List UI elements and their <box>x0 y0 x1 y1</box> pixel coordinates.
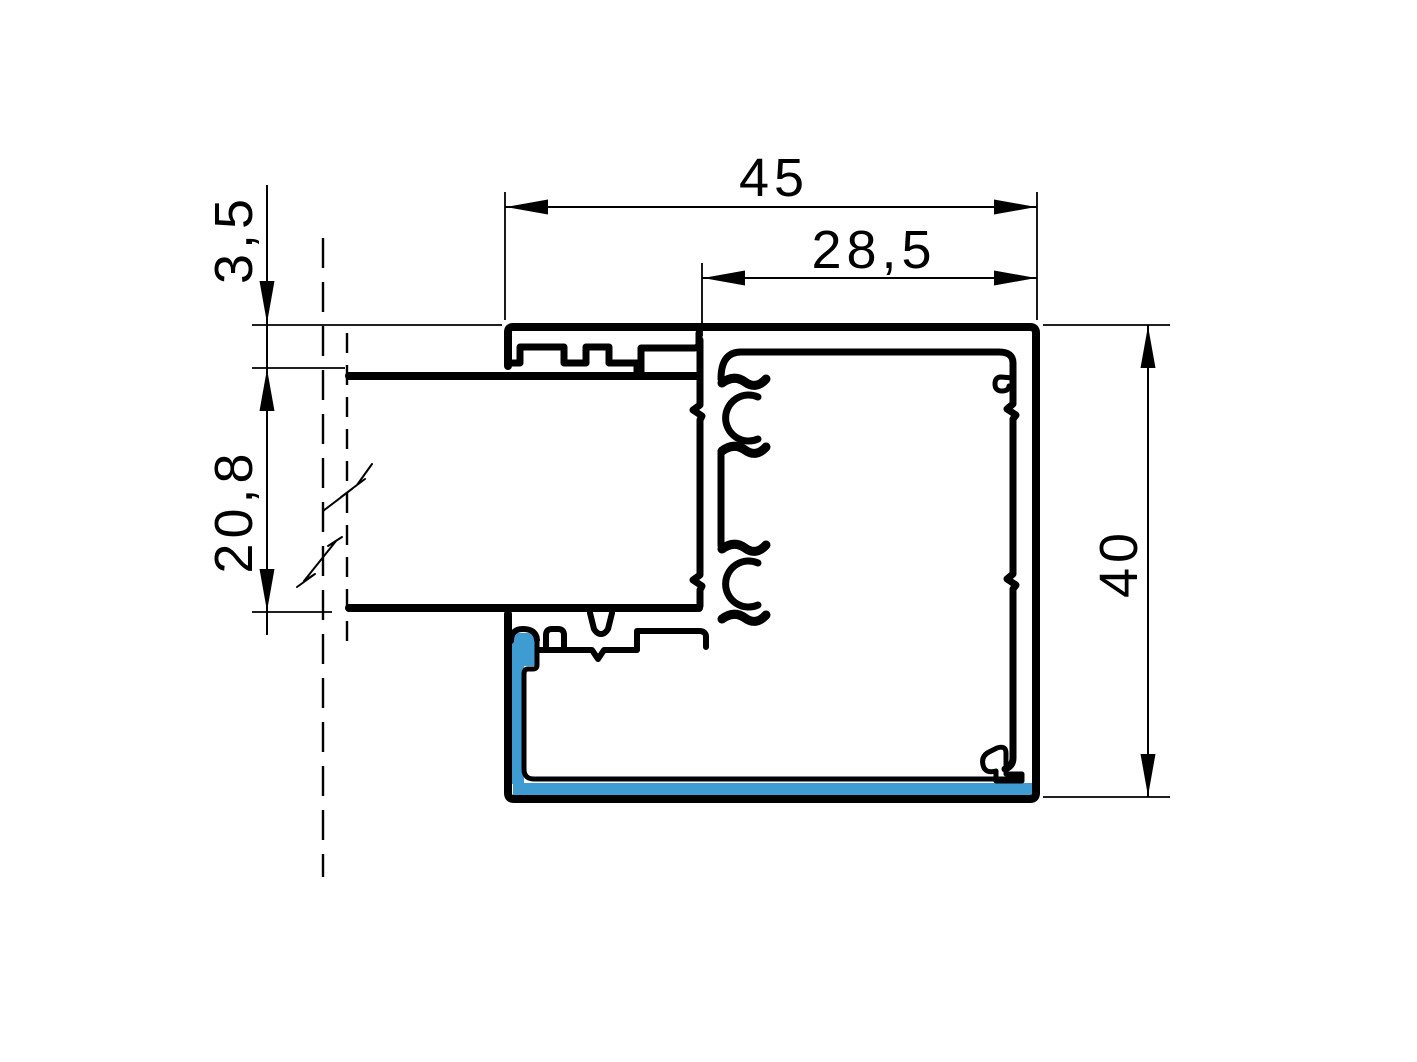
bead-hook <box>641 333 699 372</box>
arrow-40-up <box>1141 326 1156 368</box>
arrow-3-5-down <box>260 281 275 323</box>
arrow-40-down <box>1141 754 1156 796</box>
arrow-45-right <box>994 200 1036 215</box>
arrow-shared-up <box>260 369 275 411</box>
profile-cross-section-drawing: 45 28,5 3,5 20,8 40 <box>0 0 1417 1062</box>
arrow-20-8-down <box>260 569 275 611</box>
shelf-slot <box>590 613 612 634</box>
label-front-lip: 3,5 <box>204 194 264 284</box>
inner-wall-hook <box>995 377 1013 391</box>
thermal-strip-fill <box>513 783 1033 796</box>
label-top-width: 45 <box>739 148 809 208</box>
label-glazing-thickness: 20,8 <box>204 448 264 573</box>
glass-break-lower <box>297 537 342 587</box>
arrow-45-left <box>506 200 548 215</box>
chamber-inner-contour <box>721 352 1016 769</box>
tray-tooth <box>546 629 564 650</box>
drawing-canvas: 45 28,5 3,5 20,8 40 <box>0 0 1417 1062</box>
top-serration <box>509 347 637 373</box>
highlight-fills <box>512 633 1033 796</box>
outer-contour <box>508 327 1036 799</box>
arrow-28-5-right <box>994 271 1036 286</box>
glass-symbols <box>297 238 372 877</box>
screw-clip-lower <box>722 544 766 621</box>
profile-outline <box>349 327 1036 799</box>
arrow-28-5-left <box>703 271 745 286</box>
label-profile-height: 40 <box>1089 528 1149 598</box>
label-glazing-rebate-width: 28,5 <box>811 220 936 280</box>
screw-clip-upper <box>722 378 766 453</box>
